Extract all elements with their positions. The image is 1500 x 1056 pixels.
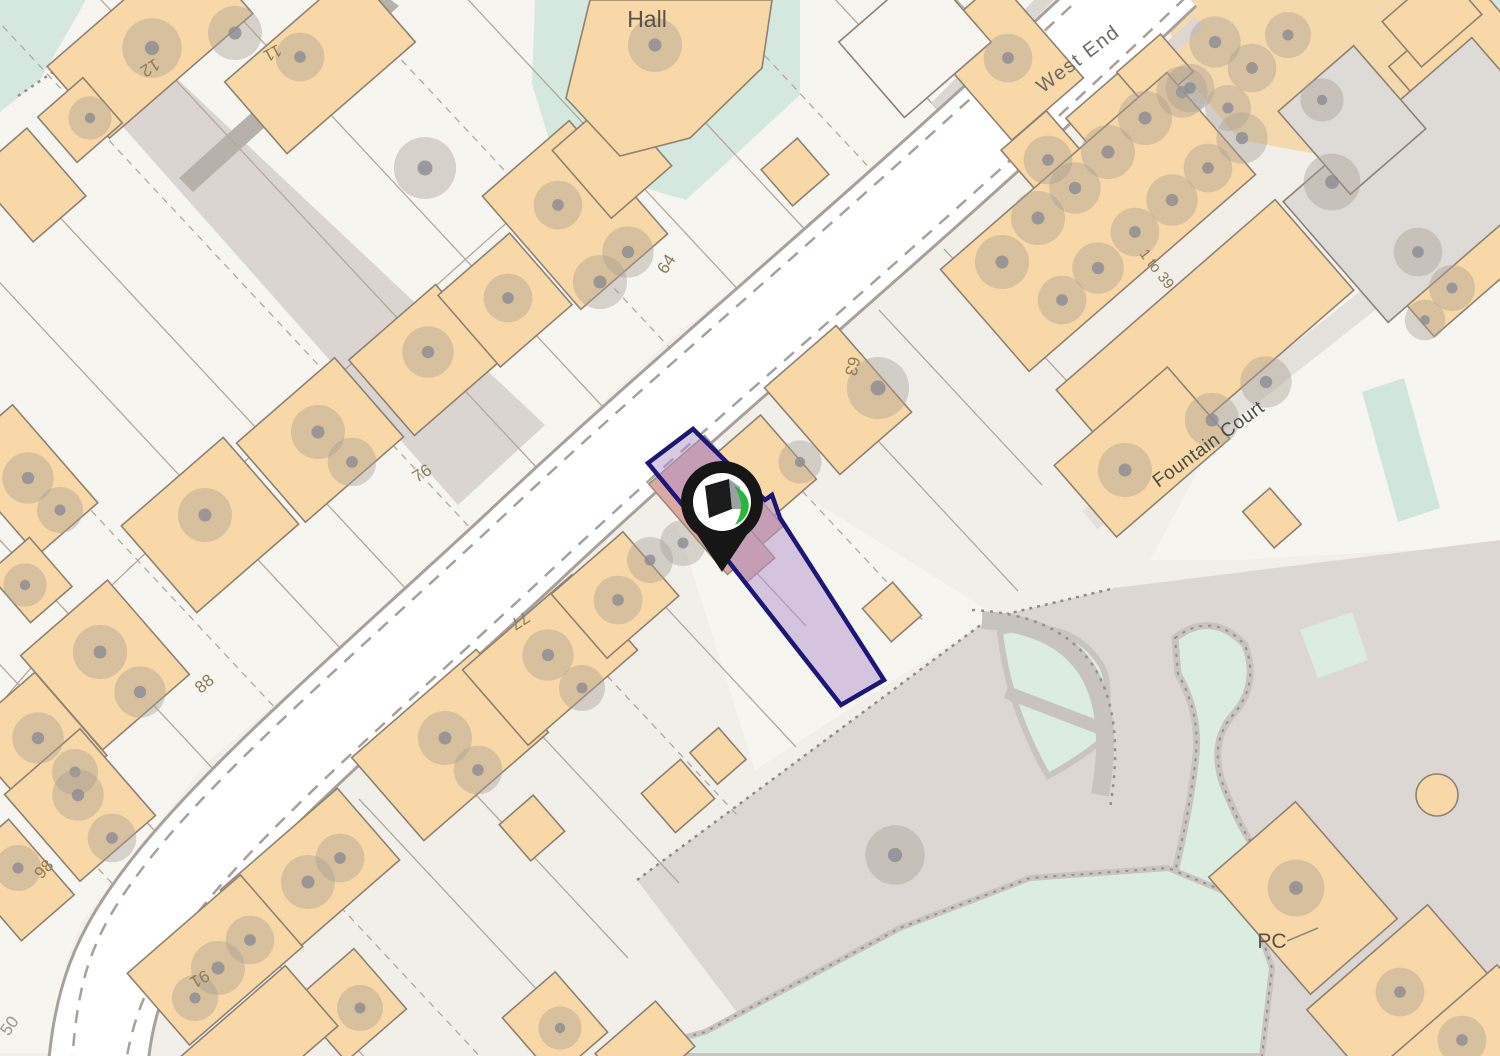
tree-icon bbox=[337, 985, 383, 1031]
tree-icon bbox=[975, 235, 1029, 289]
tree-icon bbox=[1268, 860, 1325, 917]
tree-icon bbox=[114, 666, 165, 717]
tree-icon bbox=[1228, 44, 1277, 93]
tree-icon bbox=[208, 6, 262, 60]
tree-icon bbox=[1265, 12, 1311, 58]
tree-icon bbox=[984, 34, 1033, 83]
tree-icon bbox=[402, 326, 453, 377]
tree-icon bbox=[178, 488, 232, 542]
building-round bbox=[1416, 774, 1458, 816]
tree-icon bbox=[1394, 228, 1443, 277]
tree-icon bbox=[88, 814, 137, 863]
label-hall: Hall bbox=[627, 6, 667, 32]
tree-icon bbox=[52, 769, 103, 820]
tree-icon bbox=[602, 226, 653, 277]
tree-icon bbox=[594, 576, 643, 625]
tree-icon bbox=[1072, 242, 1123, 293]
tree-icon bbox=[534, 181, 583, 230]
tree-icon bbox=[316, 834, 365, 883]
tree-icon bbox=[226, 916, 275, 965]
tree-icon bbox=[1405, 300, 1446, 341]
tree-icon bbox=[1024, 136, 1073, 185]
map-canvas[interactable]: Hall West End Fountain Court PC 64 63 76… bbox=[0, 0, 1500, 1056]
tree-icon bbox=[454, 746, 503, 795]
tree-icon bbox=[559, 665, 605, 711]
tree-icon bbox=[37, 487, 83, 533]
tree-icon bbox=[68, 96, 111, 139]
tree-icon bbox=[12, 712, 63, 763]
tree-icon bbox=[538, 1006, 581, 1049]
tree-icon bbox=[865, 825, 924, 884]
tree-icon bbox=[1376, 968, 1425, 1017]
tree-icon bbox=[1304, 154, 1361, 211]
tree-icon bbox=[1240, 356, 1291, 407]
label-pc: PC bbox=[1257, 930, 1286, 953]
tree-icon bbox=[3, 563, 46, 606]
tree-icon bbox=[484, 274, 533, 323]
tree-icon bbox=[1300, 78, 1343, 121]
tree-icon bbox=[1205, 85, 1251, 131]
tree-icon bbox=[328, 438, 377, 487]
tree-icon bbox=[1098, 443, 1152, 497]
tree-icon bbox=[73, 625, 127, 679]
tree-icon bbox=[394, 137, 456, 199]
map-viewport[interactable]: Hall West End Fountain Court PC 64 63 76… bbox=[0, 0, 1500, 1056]
tree-icon bbox=[778, 440, 821, 483]
